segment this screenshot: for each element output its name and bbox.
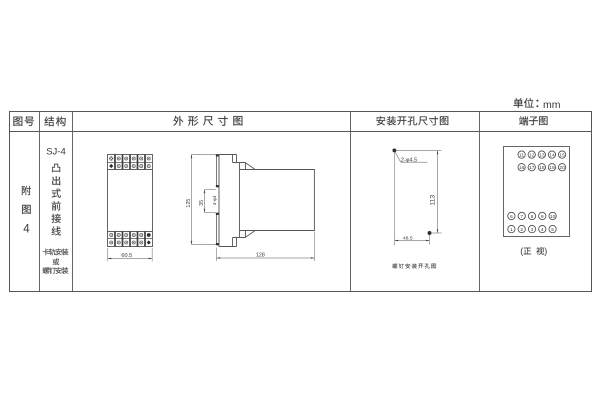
svg-text:60.5: 60.5 (121, 253, 132, 259)
svg-text:): ) (544, 246, 547, 256)
svg-text:18: 18 (539, 165, 545, 171)
svg-text:15: 15 (559, 152, 565, 158)
svg-text:125: 125 (186, 199, 192, 208)
svg-text:19: 19 (549, 165, 555, 171)
svg-text:17: 17 (529, 165, 535, 171)
svg-text:113: 113 (430, 195, 437, 206)
svg-text:10: 10 (550, 214, 556, 220)
svg-text:35: 35 (199, 200, 205, 206)
svg-text:14: 14 (549, 152, 555, 158)
svg-text:12: 12 (529, 152, 535, 158)
svg-text:4: 4 (541, 227, 544, 233)
svg-text:20: 20 (559, 165, 565, 171)
svg-text:1: 1 (510, 227, 513, 233)
svg-text:48.5: 48.5 (403, 235, 413, 241)
svg-text:7: 7 (520, 214, 523, 220)
svg-text:16: 16 (519, 165, 525, 171)
svg-text:(: ( (520, 246, 523, 256)
svg-text:11: 11 (519, 152, 524, 158)
svg-text:13: 13 (539, 152, 545, 158)
svg-text:9: 9 (541, 214, 544, 220)
svg-text:8: 8 (531, 214, 534, 220)
svg-text:2-φ4.5: 2-φ4.5 (401, 158, 417, 164)
svg-text:mm: mm (543, 99, 561, 111)
svg-text:128: 128 (256, 252, 265, 258)
svg-text:4-φ4: 4-φ4 (212, 195, 217, 205)
svg-text:3: 3 (531, 227, 534, 233)
svg-text:SJ-4: SJ-4 (46, 146, 66, 157)
svg-text:6: 6 (510, 214, 513, 220)
svg-text:4: 4 (23, 223, 30, 235)
svg-text:2: 2 (520, 227, 523, 233)
svg-text:5: 5 (551, 227, 554, 233)
